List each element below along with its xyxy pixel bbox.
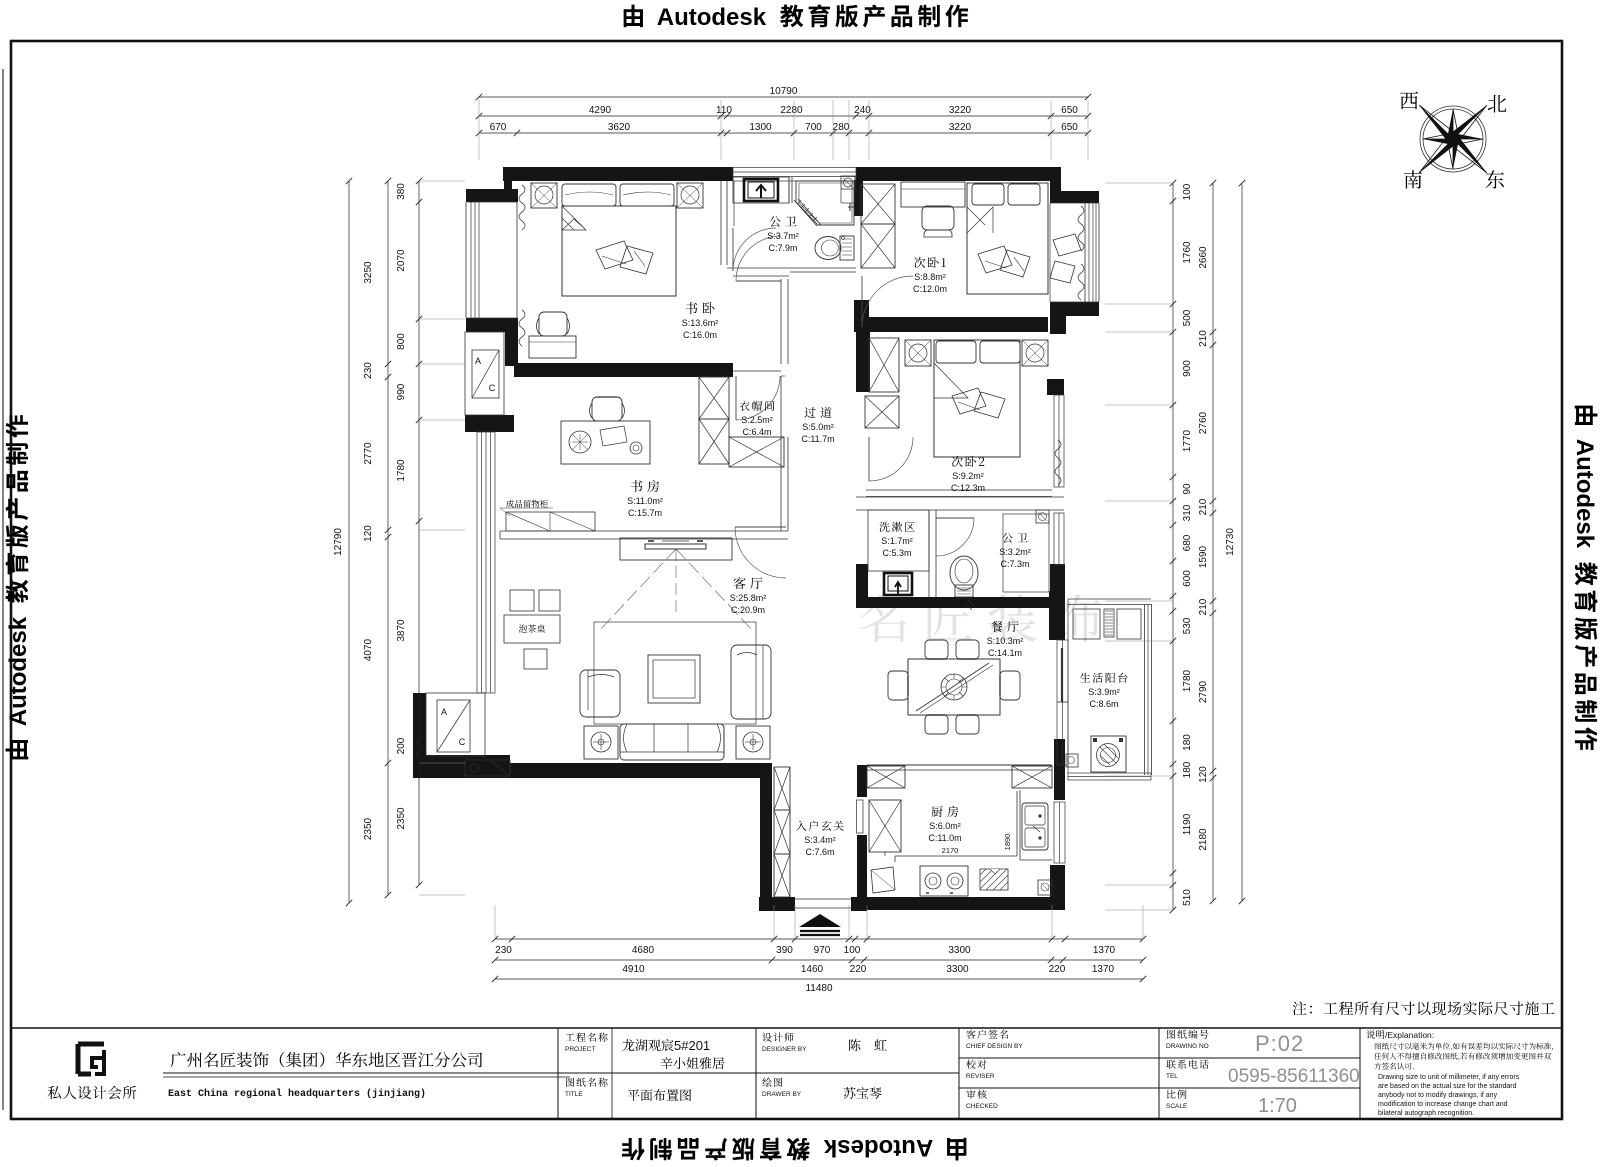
svg-text:DRAWING NO: DRAWING NO: [1166, 1043, 1209, 1050]
svg-text:East China regional headquarte: East China regional headquarters (jinjia…: [168, 1088, 426, 1100]
svg-text:2350: 2350: [396, 807, 407, 830]
svg-text:S:5.0m²: S:5.0m²: [802, 422, 834, 432]
svg-text:CHECKED: CHECKED: [966, 1103, 998, 1110]
svg-text:390: 390: [776, 945, 793, 956]
svg-text:P:02: P:02: [1255, 1031, 1304, 1056]
svg-text:PROJECT: PROJECT: [565, 1046, 595, 1053]
svg-text:DRAWER BY: DRAWER BY: [762, 1091, 802, 1098]
svg-text:210: 210: [1198, 598, 1209, 615]
svg-text:S:25.8m²: S:25.8m²: [730, 593, 767, 603]
svg-text:10790: 10790: [770, 86, 798, 97]
svg-text:C:8.6m: C:8.6m: [1089, 699, 1118, 709]
svg-text:12790: 12790: [333, 528, 344, 556]
svg-text:700: 700: [805, 122, 822, 133]
svg-text:210: 210: [1198, 330, 1209, 347]
svg-text:Autodesk: Autodesk: [5, 616, 32, 726]
svg-text:1780: 1780: [396, 459, 407, 482]
svg-text:C:5.3m: C:5.3m: [882, 548, 911, 558]
svg-text:3220: 3220: [949, 105, 972, 116]
svg-text:/Explanation:: /Explanation:: [1385, 1030, 1434, 1040]
svg-text:200: 200: [396, 737, 407, 754]
svg-text:3620: 3620: [608, 122, 631, 133]
svg-text:210: 210: [1198, 498, 1209, 515]
svg-text:1:70: 1:70: [1258, 1095, 1297, 1117]
svg-text:S:3.9m²: S:3.9m²: [1088, 687, 1120, 697]
svg-text:2280: 2280: [780, 105, 803, 116]
svg-text:220: 220: [850, 964, 867, 975]
svg-text:SCALE: SCALE: [1166, 1103, 1188, 1110]
svg-text:310: 310: [1182, 504, 1193, 521]
svg-text:4070: 4070: [363, 638, 374, 661]
svg-text:1770: 1770: [1182, 429, 1193, 452]
svg-text:900: 900: [1182, 360, 1193, 377]
svg-text:11480: 11480: [805, 983, 833, 994]
svg-text:S:11.0m²: S:11.0m²: [627, 496, 663, 506]
svg-text:3300: 3300: [946, 964, 969, 975]
svg-text:280: 280: [833, 122, 850, 133]
svg-text:C:11.0m: C:11.0m: [928, 833, 961, 843]
svg-text:1890: 1890: [1003, 834, 1012, 851]
svg-text:C:7.6m: C:7.6m: [805, 847, 834, 857]
svg-text:S:3.2m²: S:3.2m²: [999, 547, 1031, 557]
svg-text:650: 650: [1061, 105, 1078, 116]
svg-text:1760: 1760: [1182, 241, 1193, 264]
svg-text:C:20.9m: C:20.9m: [731, 605, 765, 615]
svg-text:380: 380: [396, 183, 407, 200]
svg-text:C:7.3m: C:7.3m: [1000, 559, 1029, 569]
svg-text:C: C: [489, 383, 496, 393]
svg-text:1460: 1460: [801, 964, 824, 975]
svg-text:180: 180: [1182, 761, 1193, 778]
svg-text:REVISER: REVISER: [966, 1073, 995, 1080]
svg-text:0595-85611360: 0595-85611360: [1228, 1066, 1360, 1087]
svg-text:180: 180: [1182, 734, 1193, 751]
svg-text:anybody not to modify drawings: anybody not to modify drawings, if any: [1378, 1092, 1498, 1099]
svg-text:C:11.7m: C:11.7m: [801, 434, 834, 444]
svg-text:S:3.7m²: S:3.7m²: [767, 231, 799, 241]
svg-text:1370: 1370: [1093, 945, 1116, 956]
svg-text:2180: 2180: [1198, 828, 1209, 851]
svg-text:CHIEF DESIGN BY: CHIEF DESIGN BY: [966, 1043, 1023, 1050]
svg-text:A: A: [441, 707, 447, 717]
svg-text:230: 230: [495, 945, 512, 956]
svg-text:Autodesk: Autodesk: [823, 1134, 933, 1161]
svg-text:220: 220: [1049, 964, 1066, 975]
svg-text:670: 670: [490, 122, 507, 133]
svg-text:530: 530: [1182, 617, 1193, 634]
svg-text:C:12.0m: C:12.0m: [913, 284, 947, 294]
svg-text:230: 230: [363, 362, 374, 379]
svg-text:S:1.7m²: S:1.7m²: [881, 536, 913, 546]
svg-text:S:3.4m²: S:3.4m²: [804, 835, 836, 845]
svg-text:Drawing size to unit of millim: Drawing size to unit of millimeter, if a…: [1378, 1074, 1520, 1081]
svg-text:5#201: 5#201: [674, 1038, 710, 1053]
svg-text:modification to increase chang: modification to increase change chart an…: [1378, 1101, 1508, 1108]
svg-text:TITLE: TITLE: [565, 1091, 583, 1098]
svg-text:C:6.4m: C:6.4m: [742, 427, 771, 437]
svg-text:are based on the actual size f: are based on the actual size for the sta…: [1378, 1083, 1517, 1090]
svg-text:C:7.9m: C:7.9m: [768, 243, 797, 253]
svg-text:650: 650: [1061, 122, 1078, 133]
svg-text:C: C: [459, 737, 466, 747]
svg-text:A: A: [475, 356, 481, 366]
svg-text:800: 800: [396, 333, 407, 350]
svg-text:4910: 4910: [622, 964, 645, 975]
svg-text:120: 120: [363, 525, 374, 542]
svg-text:S:9.2m²: S:9.2m²: [952, 471, 984, 481]
svg-text:4680: 4680: [632, 945, 655, 956]
svg-text:C:14.1m: C:14.1m: [988, 648, 1022, 658]
svg-text:3220: 3220: [949, 122, 972, 133]
svg-text:970: 970: [814, 945, 831, 956]
svg-text:S:10.3m²: S:10.3m²: [987, 636, 1024, 646]
svg-text:240: 240: [854, 105, 871, 116]
svg-text:1300: 1300: [749, 122, 772, 133]
svg-text:1590: 1590: [1198, 545, 1209, 568]
svg-text:S:6.0m²: S:6.0m²: [929, 821, 961, 831]
svg-text:Autodesk: Autodesk: [1571, 439, 1598, 549]
svg-text:3300: 3300: [948, 945, 971, 956]
svg-text:510: 510: [1182, 889, 1193, 906]
svg-text:DESIGNER BY: DESIGNER BY: [762, 1046, 807, 1053]
svg-text:2660: 2660: [1198, 246, 1209, 269]
svg-text:S:8.8m²: S:8.8m²: [914, 272, 946, 282]
svg-text:2070: 2070: [396, 249, 407, 272]
svg-text:100: 100: [844, 945, 861, 956]
svg-text:3250: 3250: [363, 261, 374, 284]
svg-text:680: 680: [1182, 534, 1193, 551]
svg-text:2350: 2350: [363, 817, 374, 840]
svg-text:S:2.5m²: S:2.5m²: [741, 415, 773, 425]
svg-text:Autodesk: Autodesk: [657, 4, 767, 31]
svg-text:TEL: TEL: [1166, 1073, 1178, 1080]
svg-text:500: 500: [1182, 309, 1193, 326]
svg-text:990: 990: [396, 383, 407, 400]
svg-text:110: 110: [716, 105, 732, 116]
svg-text:2770: 2770: [363, 442, 374, 465]
svg-text:C:15.7m: C:15.7m: [628, 508, 662, 518]
svg-text:2790: 2790: [1198, 680, 1209, 703]
svg-text:1370: 1370: [1092, 964, 1115, 975]
svg-text:1190: 1190: [1182, 813, 1193, 835]
svg-text:600: 600: [1182, 570, 1193, 587]
svg-text:3870: 3870: [396, 619, 407, 642]
svg-text:2760: 2760: [1198, 411, 1209, 434]
svg-text:C:16.0m: C:16.0m: [683, 330, 717, 340]
svg-text:2170: 2170: [942, 846, 959, 855]
svg-text:S:13.6m²: S:13.6m²: [682, 318, 719, 328]
svg-text:bilateral autograph recognitio: bilateral autograph recognition.: [1378, 1110, 1474, 1117]
svg-text:100: 100: [1182, 183, 1193, 200]
svg-text:1780: 1780: [1182, 669, 1193, 692]
svg-text:90: 90: [1182, 483, 1193, 495]
svg-text:12730: 12730: [1225, 528, 1236, 556]
svg-text:4290: 4290: [589, 105, 612, 116]
svg-text:C:12.3m: C:12.3m: [951, 483, 985, 493]
svg-text:120: 120: [1198, 766, 1209, 783]
